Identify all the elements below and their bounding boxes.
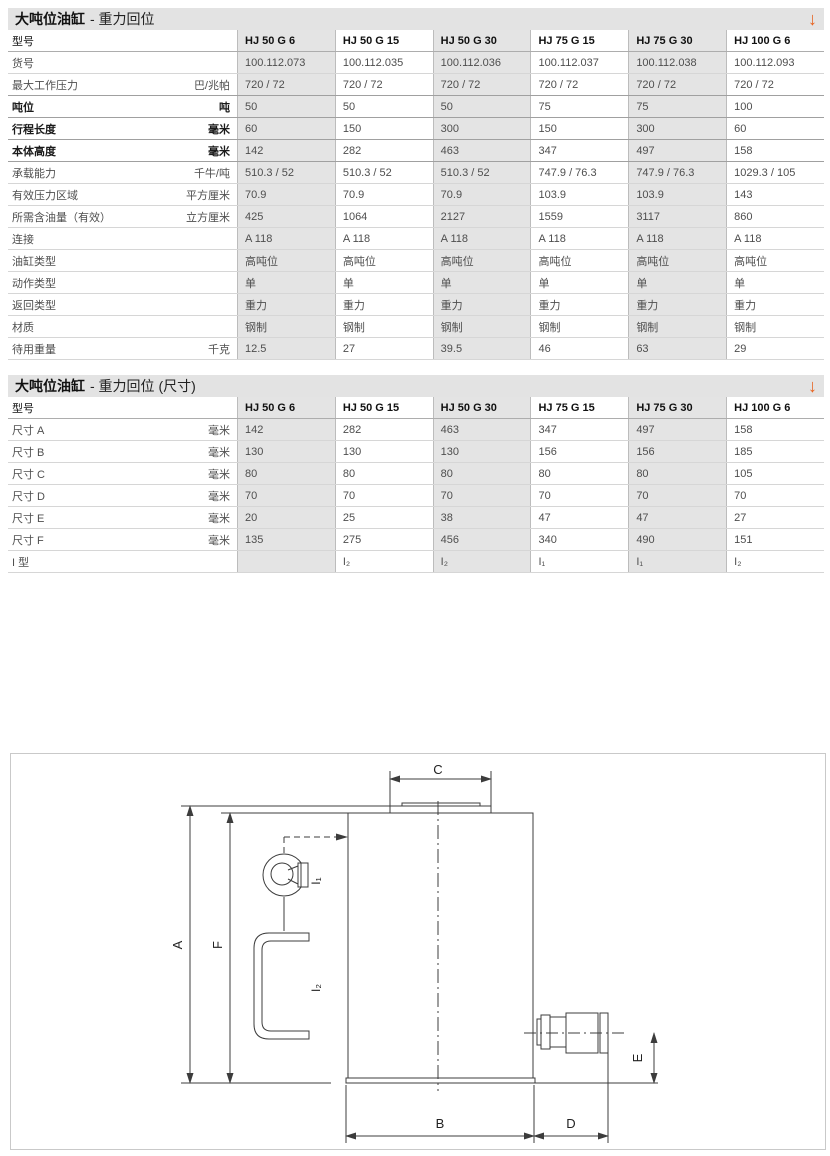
table-row: I 型I₂I₂I₁I₁I₂ bbox=[8, 551, 824, 573]
row-label: 待用重量 bbox=[12, 341, 56, 357]
table-cell: 27 bbox=[726, 507, 824, 528]
lifting-eye-inner bbox=[271, 863, 293, 885]
dimensions-table: 型号HJ 50 G 6HJ 50 G 15HJ 50 G 30HJ 75 G 1… bbox=[8, 397, 824, 573]
table-cell: 463 bbox=[433, 140, 531, 161]
row-unit: 立方厘米 bbox=[186, 209, 230, 225]
table-cell: 340 bbox=[530, 529, 628, 550]
table-cell: 135 bbox=[237, 529, 335, 550]
table-cell: 60 bbox=[237, 118, 335, 139]
table-cell: 282 bbox=[335, 140, 433, 161]
down-arrow-icon[interactable]: ↓ bbox=[808, 10, 817, 28]
row-unit: 毫米 bbox=[208, 422, 230, 438]
table-cell: 50 bbox=[237, 96, 335, 117]
table-cell: 510.3 / 52 bbox=[335, 162, 433, 183]
column-header: HJ 100 G 6 bbox=[726, 30, 824, 51]
table-cell: 158 bbox=[726, 140, 824, 161]
table-cell: 100.112.037 bbox=[530, 52, 628, 73]
table-cell: 720 / 72 bbox=[433, 74, 531, 95]
column-header: HJ 75 G 30 bbox=[628, 397, 726, 418]
table-cell: 70.9 bbox=[335, 184, 433, 205]
table-cell: 80 bbox=[237, 463, 335, 484]
specs-table: 型号HJ 50 G 6HJ 50 G 15HJ 50 G 30HJ 75 G 1… bbox=[8, 30, 824, 360]
table-cell: 75 bbox=[530, 96, 628, 117]
table-row: 有效压力区域平方厘米70.970.970.9103.9103.9143 bbox=[8, 184, 824, 206]
table-row: 最大工作压力巴/兆帕720 / 72720 / 72720 / 72720 / … bbox=[8, 74, 824, 96]
table-cell: 103.9 bbox=[530, 184, 628, 205]
table-cell: 720 / 72 bbox=[530, 74, 628, 95]
coupler-ring2 bbox=[550, 1017, 566, 1047]
section-specs: 大吨位油缸- 重力回位 ↓ 型号HJ 50 G 6HJ 50 G 15HJ 50… bbox=[8, 8, 824, 360]
table-cell: 高吨位 bbox=[726, 250, 824, 271]
technical-drawing: C A F I₁ I₂ E B D bbox=[10, 753, 826, 1150]
row-unit: 千克 bbox=[208, 341, 230, 357]
row-label: 行程长度 bbox=[12, 121, 56, 137]
table-cell: A 118 bbox=[335, 228, 433, 249]
catalog-page: 大吨位油缸- 重力回位 ↓ 型号HJ 50 G 6HJ 50 G 15HJ 50… bbox=[0, 0, 830, 1156]
column-header: HJ 75 G 30 bbox=[628, 30, 726, 51]
table-cell: 100.112.073 bbox=[237, 52, 335, 73]
table-cell: 497 bbox=[628, 140, 726, 161]
table-cell: 63 bbox=[628, 338, 726, 359]
table-row: 本体高度毫米142282463347497158 bbox=[8, 140, 824, 162]
table-cell: I₁ bbox=[530, 551, 628, 572]
table-cell: 158 bbox=[726, 419, 824, 440]
row-label: 动作类型 bbox=[12, 275, 56, 291]
table-cell: 142 bbox=[237, 140, 335, 161]
table-row: 连接A 118A 118A 118A 118A 118A 118 bbox=[8, 228, 824, 250]
table-cell: 747.9 / 76.3 bbox=[628, 162, 726, 183]
table-cell: A 118 bbox=[628, 228, 726, 249]
table-row: 尺寸 A毫米142282463347497158 bbox=[8, 419, 824, 441]
table-cell: 150 bbox=[335, 118, 433, 139]
row-label: 尺寸 C bbox=[12, 466, 45, 482]
table-cell: 单 bbox=[237, 272, 335, 293]
table-cell: 重力 bbox=[726, 294, 824, 315]
table-cell: 510.3 / 52 bbox=[433, 162, 531, 183]
row-unit: 平方厘米 bbox=[186, 187, 230, 203]
table-cell: 38 bbox=[433, 507, 531, 528]
table-row: 尺寸 E毫米202538474727 bbox=[8, 507, 824, 529]
cylinder-body bbox=[348, 813, 533, 1078]
table-cell: 156 bbox=[530, 441, 628, 462]
section-title-sub: - 重力回位 (尺寸) bbox=[90, 378, 196, 394]
table-row: 行程长度毫米6015030015030060 bbox=[8, 118, 824, 140]
table-cell: 425 bbox=[237, 206, 335, 227]
table-cell: 70 bbox=[530, 485, 628, 506]
row-unit: 吨 bbox=[219, 99, 230, 115]
row-unit: 毫米 bbox=[208, 488, 230, 504]
table-cell: 单 bbox=[726, 272, 824, 293]
column-header: HJ 50 G 6 bbox=[237, 30, 335, 51]
table-cell: 70 bbox=[335, 485, 433, 506]
table-cell: 80 bbox=[433, 463, 531, 484]
saddle-plate bbox=[390, 806, 491, 813]
row-label: 尺寸 F bbox=[12, 532, 44, 548]
table-cell: 单 bbox=[628, 272, 726, 293]
column-header: HJ 50 G 30 bbox=[433, 397, 531, 418]
dim-label-c: C bbox=[433, 762, 442, 777]
table-cell: 130 bbox=[237, 441, 335, 462]
dim-label-a: A bbox=[170, 940, 185, 949]
row-unit: 毫米 bbox=[208, 444, 230, 460]
table-cell: 27 bbox=[335, 338, 433, 359]
table-cell: I₂ bbox=[726, 551, 824, 572]
table-row: 动作类型单单单单单单 bbox=[8, 272, 824, 294]
dim-label-d: D bbox=[566, 1116, 575, 1131]
table-cell: A 118 bbox=[530, 228, 628, 249]
table-cell: 80 bbox=[628, 463, 726, 484]
row-unit: 毫米 bbox=[208, 466, 230, 482]
row-label: 尺寸 A bbox=[12, 422, 44, 438]
column-header: HJ 75 G 15 bbox=[530, 397, 628, 418]
table-cell: A 118 bbox=[726, 228, 824, 249]
row-label: 本体高度 bbox=[12, 143, 56, 159]
row-unit: 千牛/吨 bbox=[194, 165, 230, 181]
table-cell: 重力 bbox=[433, 294, 531, 315]
table-row: 尺寸 C毫米8080808080105 bbox=[8, 463, 824, 485]
row-unit: 毫米 bbox=[208, 143, 230, 159]
table-row: 尺寸 B毫米130130130156156185 bbox=[8, 441, 824, 463]
table-cell: 747.9 / 76.3 bbox=[530, 162, 628, 183]
row-label: 货号 bbox=[12, 55, 34, 71]
table-cell: 高吨位 bbox=[335, 250, 433, 271]
table-cell: 钢制 bbox=[237, 316, 335, 337]
table-cell: 单 bbox=[335, 272, 433, 293]
section-title-main: 大吨位油缸 bbox=[15, 378, 85, 394]
row-label: 返回类型 bbox=[12, 297, 56, 313]
table-row: 尺寸 F毫米135275456340490151 bbox=[8, 529, 824, 551]
column-header: HJ 50 G 6 bbox=[237, 397, 335, 418]
table-cell: 钢制 bbox=[530, 316, 628, 337]
dim-label-f: F bbox=[210, 941, 225, 949]
coupler-collar bbox=[537, 1019, 541, 1045]
table-cell: 重力 bbox=[237, 294, 335, 315]
table-cell: 单 bbox=[433, 272, 531, 293]
table-cell: 497 bbox=[628, 419, 726, 440]
table-cell: 钢制 bbox=[628, 316, 726, 337]
table-cell: 490 bbox=[628, 529, 726, 550]
table-cell: 510.3 / 52 bbox=[237, 162, 335, 183]
table-cell: 80 bbox=[335, 463, 433, 484]
table-cell: I₂ bbox=[335, 551, 433, 572]
table-cell: 钢制 bbox=[433, 316, 531, 337]
table-cell: 151 bbox=[726, 529, 824, 550]
table-cell: 75 bbox=[628, 96, 726, 117]
table-cell bbox=[237, 551, 335, 572]
dim-label-i1: I₁ bbox=[309, 877, 323, 884]
row-label: 吨位 bbox=[12, 99, 34, 115]
saddle-top-step bbox=[402, 803, 480, 806]
table-cell: 80 bbox=[530, 463, 628, 484]
table-cell: 347 bbox=[530, 140, 628, 161]
table-cell: 103.9 bbox=[628, 184, 726, 205]
table-cell: 60 bbox=[726, 118, 824, 139]
table-cell: 100 bbox=[726, 96, 824, 117]
table-cell: 720 / 72 bbox=[628, 74, 726, 95]
table-cell: 720 / 72 bbox=[237, 74, 335, 95]
table-cell: 150 bbox=[530, 118, 628, 139]
table-cell: 单 bbox=[530, 272, 628, 293]
column-header: HJ 50 G 15 bbox=[335, 30, 433, 51]
table-cell: 29 bbox=[726, 338, 824, 359]
table-cell: 50 bbox=[335, 96, 433, 117]
table-cell: A 118 bbox=[237, 228, 335, 249]
table-cell: 1064 bbox=[335, 206, 433, 227]
table-cell: 46 bbox=[530, 338, 628, 359]
table-header-row: 型号HJ 50 G 6HJ 50 G 15HJ 50 G 30HJ 75 G 1… bbox=[8, 30, 824, 52]
coupler-ring1 bbox=[541, 1015, 550, 1049]
table-row: 货号100.112.073100.112.035100.112.036100.1… bbox=[8, 52, 824, 74]
table-cell: I₂ bbox=[433, 551, 531, 572]
table-cell: 47 bbox=[530, 507, 628, 528]
table-cell: 70 bbox=[726, 485, 824, 506]
table-cell: 重力 bbox=[335, 294, 433, 315]
table-cell: 463 bbox=[433, 419, 531, 440]
table-cell: 720 / 72 bbox=[726, 74, 824, 95]
down-arrow-icon[interactable]: ↓ bbox=[808, 377, 817, 395]
row-unit: 巴/兆帕 bbox=[194, 77, 230, 93]
table-cell: 105 bbox=[726, 463, 824, 484]
table-cell: 3117 bbox=[628, 206, 726, 227]
table-row: 吨位吨5050507575100 bbox=[8, 96, 824, 118]
table-cell: 100.112.093 bbox=[726, 52, 824, 73]
row-label: 连接 bbox=[12, 231, 34, 247]
table-cell: 300 bbox=[433, 118, 531, 139]
table-cell: 275 bbox=[335, 529, 433, 550]
row-label: 尺寸 E bbox=[12, 510, 44, 526]
table-cell: 25 bbox=[335, 507, 433, 528]
table-cell: 高吨位 bbox=[237, 250, 335, 271]
column-header: HJ 50 G 15 bbox=[335, 397, 433, 418]
table-cell: 100.112.036 bbox=[433, 52, 531, 73]
carry-handle bbox=[254, 933, 309, 1039]
table-cell: 282 bbox=[335, 419, 433, 440]
table-row: 油缸类型高吨位高吨位高吨位高吨位高吨位高吨位 bbox=[8, 250, 824, 272]
table-cell: 高吨位 bbox=[628, 250, 726, 271]
table-row: 承载能力千牛/吨510.3 / 52510.3 / 52510.3 / 5274… bbox=[8, 162, 824, 184]
table-cell: 70 bbox=[433, 485, 531, 506]
table-header-row: 型号HJ 50 G 6HJ 50 G 15HJ 50 G 30HJ 75 G 1… bbox=[8, 397, 824, 419]
row-label: 承载能力 bbox=[12, 165, 56, 181]
table-cell: 143 bbox=[726, 184, 824, 205]
table-cell: 456 bbox=[433, 529, 531, 550]
table-cell: 12.5 bbox=[237, 338, 335, 359]
table-cell: 100.112.038 bbox=[628, 52, 726, 73]
row-unit: 毫米 bbox=[208, 532, 230, 548]
cylinder-diagram: C A F I₁ I₂ E B D bbox=[11, 754, 825, 1149]
table-cell: A 118 bbox=[433, 228, 531, 249]
row-label: 尺寸 D bbox=[12, 488, 45, 504]
row-label: 材质 bbox=[12, 319, 34, 335]
table-cell: 高吨位 bbox=[530, 250, 628, 271]
table-cell: 720 / 72 bbox=[335, 74, 433, 95]
table-cell: 130 bbox=[433, 441, 531, 462]
row-label: 尺寸 B bbox=[12, 444, 44, 460]
table-cell: 1559 bbox=[530, 206, 628, 227]
dim-label-b: B bbox=[436, 1116, 445, 1131]
section-title-bar: 大吨位油缸- 重力回位 ↓ bbox=[8, 8, 824, 30]
section-title: 大吨位油缸- 重力回位 bbox=[15, 9, 155, 29]
section-title-main: 大吨位油缸 bbox=[15, 11, 85, 27]
table-row: 材质钢制钢制钢制钢制钢制钢制 bbox=[8, 316, 824, 338]
table-cell: 高吨位 bbox=[433, 250, 531, 271]
row-label: I 型 bbox=[12, 554, 29, 570]
section-dimensions: 大吨位油缸- 重力回位 (尺寸) ↓ 型号HJ 50 G 6HJ 50 G 15… bbox=[8, 375, 824, 573]
row-unit: 毫米 bbox=[208, 121, 230, 137]
table-cell: 1029.3 / 105 bbox=[726, 162, 824, 183]
table-cell: 70.9 bbox=[433, 184, 531, 205]
section-title-sub: - 重力回位 bbox=[90, 11, 155, 27]
column-header: HJ 75 G 15 bbox=[530, 30, 628, 51]
row-label: 所需含油量（有效） bbox=[12, 209, 111, 225]
table-row: 尺寸 D毫米707070707070 bbox=[8, 485, 824, 507]
table-cell: 钢制 bbox=[335, 316, 433, 337]
model-header-label: 型号 bbox=[12, 33, 34, 49]
row-unit: 毫米 bbox=[208, 510, 230, 526]
lifting-eye-clamp bbox=[298, 863, 308, 887]
table-cell: 70 bbox=[237, 485, 335, 506]
row-label: 最大工作压力 bbox=[12, 77, 78, 93]
cylinder-base-flange bbox=[346, 1078, 535, 1083]
table-row: 待用重量千克12.52739.5466329 bbox=[8, 338, 824, 360]
section-title-bar: 大吨位油缸- 重力回位 (尺寸) ↓ bbox=[8, 375, 824, 397]
table-cell: 100.112.035 bbox=[335, 52, 433, 73]
column-header: HJ 50 G 30 bbox=[433, 30, 531, 51]
column-header: HJ 100 G 6 bbox=[726, 397, 824, 418]
table-cell: 47 bbox=[628, 507, 726, 528]
table-cell: 39.5 bbox=[433, 338, 531, 359]
table-cell: 156 bbox=[628, 441, 726, 462]
dim-label-i2: I₂ bbox=[309, 984, 323, 992]
table-row: 返回类型重力重力重力重力重力重力 bbox=[8, 294, 824, 316]
table-cell: 70 bbox=[628, 485, 726, 506]
model-header-label: 型号 bbox=[12, 400, 34, 416]
dim-label-e: E bbox=[630, 1053, 645, 1062]
table-cell: 300 bbox=[628, 118, 726, 139]
section-title: 大吨位油缸- 重力回位 (尺寸) bbox=[15, 376, 196, 396]
leader-arrowhead bbox=[336, 834, 348, 841]
row-label: 有效压力区域 bbox=[12, 187, 78, 203]
table-cell: 130 bbox=[335, 441, 433, 462]
table-cell: 185 bbox=[726, 441, 824, 462]
table-cell: 钢制 bbox=[726, 316, 824, 337]
table-cell: 70.9 bbox=[237, 184, 335, 205]
table-cell: 860 bbox=[726, 206, 824, 227]
table-cell: 347 bbox=[530, 419, 628, 440]
table-cell: 重力 bbox=[628, 294, 726, 315]
table-cell: 142 bbox=[237, 419, 335, 440]
table-cell: 50 bbox=[433, 96, 531, 117]
row-label: 油缸类型 bbox=[12, 253, 56, 269]
table-cell: 重力 bbox=[530, 294, 628, 315]
table-cell: 2127 bbox=[433, 206, 531, 227]
table-cell: I₁ bbox=[628, 551, 726, 572]
table-row: 所需含油量（有效）立方厘米4251064212715593117860 bbox=[8, 206, 824, 228]
table-cell: 20 bbox=[237, 507, 335, 528]
